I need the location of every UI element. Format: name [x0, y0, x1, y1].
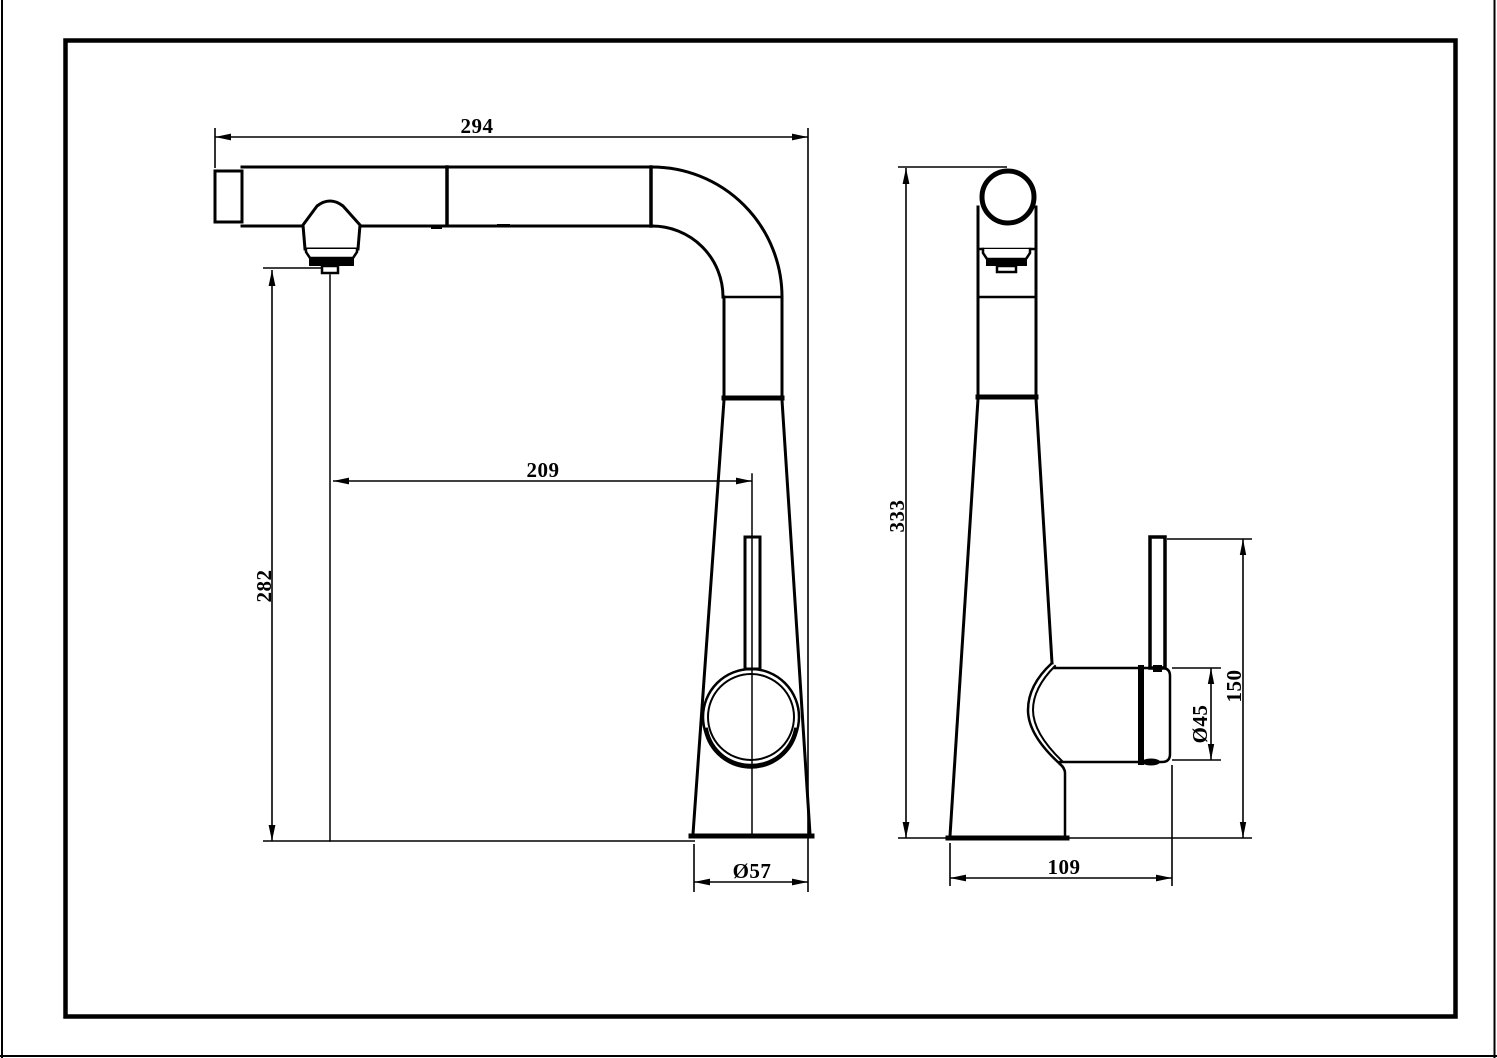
hub-bottom-blob: [1142, 759, 1160, 766]
tube-tick-right: [497, 224, 510, 227]
dim-spout-projection-label: 209: [527, 458, 560, 482]
dim-spout-outlet-height-label: 282: [252, 570, 276, 603]
body-left-edge-side: [950, 399, 978, 836]
body-right-edge-lower: [1060, 764, 1065, 836]
handle-lever-side: [1150, 537, 1165, 668]
dim-45-arrow-bottom: [1208, 744, 1214, 760]
dim-109-arrow-left: [950, 875, 966, 882]
side-view-dimensions: [898, 167, 1252, 886]
side-view: [948, 171, 1170, 838]
body-right-edge-upper: [1036, 399, 1052, 663]
dim-209-arrow-right: [736, 478, 752, 485]
body-left-edge: [693, 400, 724, 834]
dim-overall-height-label: 333: [885, 500, 909, 533]
dim-109-arrow-right: [1156, 875, 1172, 882]
dim-209-arrow-left: [333, 478, 349, 485]
page-edges: [0, 0, 1497, 1058]
body-right-edge: [782, 400, 810, 834]
dim-base-depth-label: 109: [1048, 855, 1081, 879]
dim-282-arrow-top: [269, 270, 276, 286]
nozzle-tab-side: [997, 266, 1016, 272]
dim-282-arrow-bottom: [269, 825, 276, 841]
dim-150-arrow-top: [1240, 539, 1246, 555]
hub-cap-outline: [1145, 668, 1170, 762]
dim-spout-reach-label: 294: [461, 114, 494, 138]
dim-handle-top-height-label: 150: [1222, 670, 1246, 703]
spout-end-circle: [982, 171, 1034, 223]
dim-57-arrow-right: [792, 879, 808, 886]
drawing-page: 294 209 282 Ø57 333 109 Ø45 150: [0, 0, 1497, 1058]
handle-hub-inner-circle: [708, 674, 794, 760]
dim-45-arrow-top: [1208, 668, 1214, 684]
spray-head-outline: [303, 201, 360, 249]
aerator-step: [306, 249, 357, 258]
faucet-dimension-drawing: 294 209 282 Ø57 333 109 Ø45 150: [0, 0, 1497, 1058]
dim-294-arrow-left: [215, 134, 231, 141]
lever-joint-mark: [1153, 665, 1162, 672]
tube-tick-left: [431, 226, 442, 229]
dim-333-arrow-bottom: [903, 822, 910, 838]
nozzle-tab: [322, 266, 338, 273]
dim-150-arrow-bottom: [1240, 822, 1246, 838]
dim-handle-hub-diameter-label: Ø45: [1188, 705, 1212, 744]
dim-333-arrow-top: [903, 168, 910, 184]
elbow-outer-arc: [652, 167, 782, 297]
dim-294-arrow-right: [792, 134, 808, 141]
dim-57-arrow-left: [694, 879, 710, 886]
spout-end-cap: [215, 171, 242, 222]
elbow-inner-arc: [652, 226, 723, 297]
dim-base-diameter-label: Ø57: [733, 859, 772, 883]
aerator-step-side: [983, 249, 1030, 259]
